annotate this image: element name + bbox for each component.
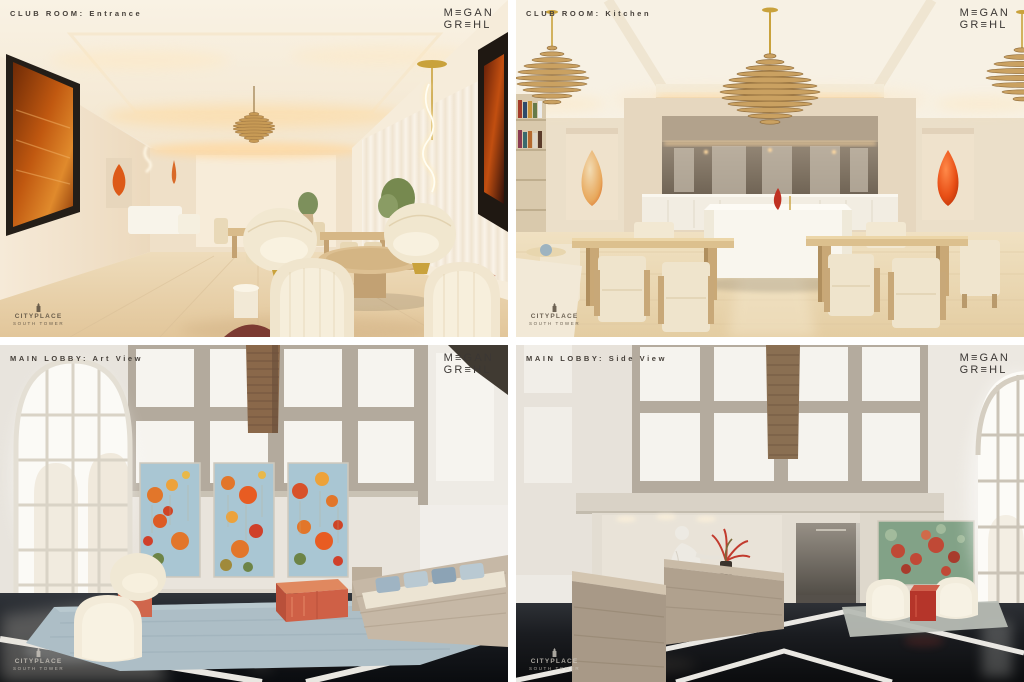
logo-line-1: M≡GAN [444, 352, 494, 364]
swivel-chair [74, 595, 142, 662]
side-table [234, 288, 258, 318]
panel-main-lobby-side-view: MAIN LOBBY: Side View M≡GAN GR≡HL CITYPL… [516, 345, 1024, 682]
megan-grehl-logo: M≡GAN GR≡HL [960, 352, 1010, 377]
meadow-painting [878, 521, 974, 585]
cityplace-title: CITYPLACE [15, 658, 63, 665]
artwork-amber [13, 62, 73, 227]
megan-grehl-logo: M≡GAN GR≡HL [444, 352, 494, 377]
white-sofa [128, 206, 182, 234]
logo-line-2: GR≡HL [960, 19, 1010, 31]
swivel-chair [866, 579, 910, 621]
cityplace-tower-icon [34, 303, 43, 312]
panel-label: CLUB ROOM: Kitchen [526, 9, 651, 18]
megan-grehl-logo: M≡GAN GR≡HL [444, 7, 494, 32]
pillow [459, 563, 485, 581]
megan-grehl-logo: M≡GAN GR≡HL [960, 7, 1010, 32]
cityplace-tower-icon [34, 648, 43, 657]
main-lobby-side-view-rendering [516, 345, 1024, 682]
cityplace-watermark: CITYPLACE SOUTH TOWER [13, 648, 64, 671]
pillow [375, 576, 401, 594]
swivel-chair [424, 262, 500, 337]
panel-label: MAIN LOBBY: Art View [10, 354, 143, 363]
cityplace-watermark: CITYPLACE SOUTH TOWER [13, 303, 64, 326]
logo-line-2: GR≡HL [960, 364, 1010, 376]
pillow [431, 567, 457, 585]
pillow [403, 571, 429, 589]
panel-club-room-kitchen: CLUB ROOM: Kitchen M≡GAN GR≡HL CITYPLACE… [516, 0, 1024, 337]
red-glass-cube [910, 585, 940, 621]
cityplace-subtitle: SOUTH TOWER [529, 321, 580, 326]
panel-main-lobby-art-view: MAIN LOBBY: Art View M≡GAN GR≡HL CITYPLA… [0, 345, 508, 682]
logo-line-2: GR≡HL [444, 364, 494, 376]
woven-banner [766, 345, 800, 459]
panel-label: CLUB ROOM: Entrance [10, 9, 142, 18]
travertine-bench [352, 555, 508, 647]
cityplace-subtitle: SOUTH TOWER [13, 666, 64, 671]
cityplace-title: CITYPLACE [531, 658, 579, 665]
cityplace-subtitle: SOUTH TOWER [13, 321, 64, 326]
swivel-chair [110, 553, 166, 601]
panel-club-room-entrance: CLUB ROOM: Entrance M≡GAN GR≡HL CITYPLAC… [0, 0, 508, 337]
logo-line-1: M≡GAN [444, 7, 494, 19]
cityplace-tower-icon [550, 303, 559, 312]
triptych-painting [140, 463, 348, 577]
cityplace-tower-icon [550, 648, 559, 657]
cityplace-watermark: CITYPLACE SOUTH TOWER [529, 303, 580, 326]
swivel-chair [270, 258, 354, 337]
logo-line-1: M≡GAN [960, 352, 1010, 364]
woven-column [246, 345, 280, 433]
cityplace-title: CITYPLACE [15, 313, 63, 320]
artwork-red [484, 54, 504, 204]
coral-cube-table [276, 579, 348, 622]
cityplace-watermark: CITYPLACE SOUTH TOWER [529, 648, 580, 671]
rendering-collage: CLUB ROOM: Entrance M≡GAN GR≡HL CITYPLAC… [0, 0, 1024, 682]
cityplace-title: CITYPLACE [531, 313, 579, 320]
main-lobby-art-view-rendering [0, 345, 508, 682]
panel-label: MAIN LOBBY: Side View [526, 354, 667, 363]
corridor [796, 523, 860, 609]
soffit [576, 493, 944, 513]
logo-line-2: GR≡HL [444, 19, 494, 31]
swivel-chair [934, 577, 978, 619]
logo-line-1: M≡GAN [960, 7, 1010, 19]
club-room-kitchen-rendering [516, 0, 1024, 337]
cityplace-subtitle: SOUTH TOWER [529, 666, 580, 671]
club-room-entrance-rendering [0, 0, 508, 337]
